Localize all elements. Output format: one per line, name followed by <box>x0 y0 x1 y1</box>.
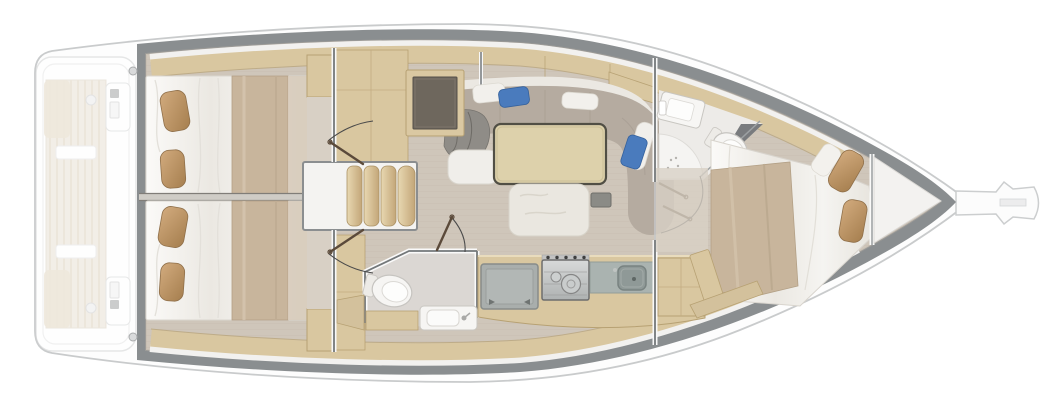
saloon-table <box>494 124 606 184</box>
blue-pillow <box>498 86 530 108</box>
cabinet-block <box>335 235 365 350</box>
cockpit-bench <box>44 270 70 328</box>
helm-console-starboard <box>106 277 130 325</box>
step-tread <box>347 166 362 226</box>
burner <box>562 275 581 294</box>
pillow <box>159 262 186 302</box>
blanket <box>232 201 288 320</box>
bowsprit <box>956 182 1039 224</box>
winch <box>86 303 96 313</box>
fridge <box>481 264 538 309</box>
cockpit-bench <box>44 80 70 138</box>
corridor-floor <box>656 168 708 252</box>
cockpit-stern-ghost <box>36 57 136 351</box>
stove <box>542 255 589 300</box>
step-tread <box>398 166 415 226</box>
winch <box>86 95 96 105</box>
nav-desk <box>413 77 457 129</box>
burner <box>551 272 561 282</box>
cabinet <box>307 55 333 97</box>
nav-seat <box>448 150 500 184</box>
step-tread <box>364 166 379 226</box>
shower-fixture <box>659 101 666 115</box>
galley-sink <box>613 266 646 290</box>
floorplan-svg <box>0 0 1053 407</box>
cabinet-block <box>335 50 408 168</box>
floorplan-canvas <box>0 0 1053 407</box>
pillow <box>160 149 187 189</box>
aft-cabin-partition <box>139 194 305 201</box>
blanket <box>711 162 798 296</box>
cockpit-table-slot <box>56 146 96 159</box>
step-tread <box>381 166 396 226</box>
small-tray <box>591 193 611 207</box>
helm-console-port <box>106 83 130 131</box>
center-bench <box>509 184 589 236</box>
anchor-roller <box>1000 199 1026 206</box>
cleat <box>129 333 137 341</box>
white-pillow <box>561 92 598 110</box>
locker <box>366 311 418 330</box>
galley <box>478 255 705 328</box>
blanket <box>232 76 288 195</box>
cockpit-table-slot <box>56 245 96 258</box>
cabinet <box>307 309 333 351</box>
cleat <box>129 67 137 75</box>
